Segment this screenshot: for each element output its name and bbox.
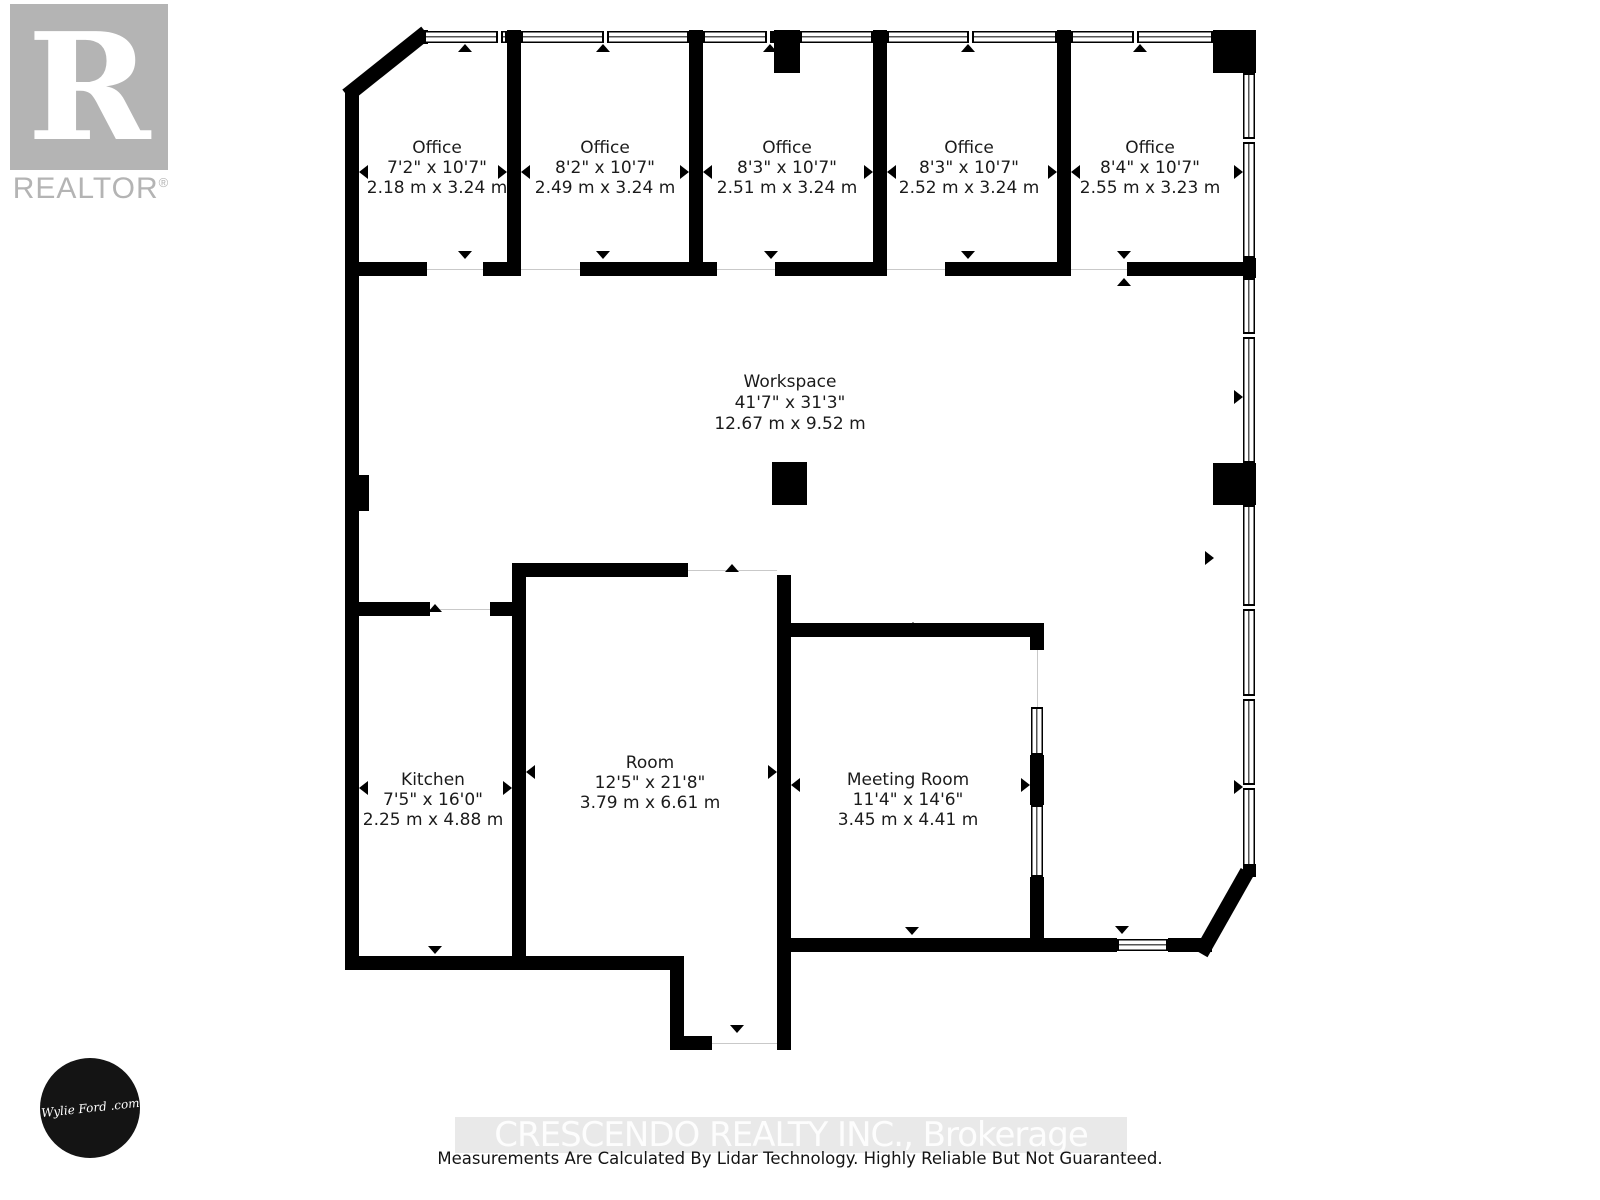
measure-arrow-icon — [887, 165, 896, 179]
measure-arrow-icon — [1048, 165, 1057, 179]
window-mullion — [1243, 332, 1255, 339]
wall-kitchen-top — [345, 602, 430, 616]
wall-room-meeting-divider — [777, 575, 791, 1050]
window-arrow-icon — [458, 44, 472, 52]
room-dimensions-imperial: 11'4" x 14'6" — [838, 790, 979, 810]
interior-window — [1031, 707, 1043, 755]
door-arrow-icon — [596, 251, 610, 259]
window-arrow-icon — [1115, 926, 1129, 934]
interior-window — [1031, 805, 1043, 877]
room-label-workspace: Workspace 41'7" x 31'3" 12.67 m x 9.52 m — [714, 372, 865, 435]
measure-arrow-icon — [864, 165, 873, 179]
room-dimensions-metric: 3.45 m x 4.41 m — [838, 810, 979, 830]
realtor-wordmark: REALTOR® — [2, 172, 180, 206]
wall-left — [345, 88, 359, 970]
room-dimensions-imperial: 8'3" x 10'7" — [899, 158, 1040, 178]
measure-arrow-icon — [703, 165, 712, 179]
room-name: Kitchen — [363, 770, 504, 790]
measure-arrow-icon — [1234, 780, 1243, 794]
wall-top-divider2 — [689, 30, 703, 44]
window-mullion — [765, 31, 772, 43]
room-name: Office — [1080, 138, 1221, 158]
room-label-office2: Office 8'2" x 10'7" 2.49 m x 3.24 m — [535, 138, 676, 198]
window — [1243, 505, 1255, 866]
room-name: Workspace — [714, 372, 865, 393]
column-top-right — [1213, 30, 1256, 73]
door-arrow-icon — [725, 564, 739, 572]
window-mullion — [1243, 604, 1255, 611]
wall-meeting-right — [1030, 755, 1044, 805]
wall-office-bottom — [345, 262, 427, 276]
door-opening — [887, 269, 945, 270]
realtor-r-mark: R — [28, 13, 151, 161]
window-mullion — [602, 31, 609, 43]
room-dimensions-imperial: 7'5" x 16'0" — [363, 790, 504, 810]
door-opening — [712, 1043, 777, 1044]
measure-arrow-icon — [1234, 165, 1243, 179]
door-opening — [717, 269, 775, 270]
room-dimensions-imperial: 12'5" x 21'8" — [580, 773, 721, 793]
wall-top-divider1 — [507, 30, 521, 44]
measure-arrow-icon — [1234, 390, 1243, 404]
window-arrow-icon — [763, 44, 777, 52]
wall-room-top — [512, 563, 688, 577]
wall-office-bottom — [945, 262, 1071, 276]
wall-vestibule-bottom — [670, 1036, 712, 1050]
room-dimensions-imperial: 7'2" x 10'7" — [367, 158, 508, 178]
room-dimensions-metric: 2.51 m x 3.24 m — [717, 178, 858, 198]
door-arrow-icon — [961, 251, 975, 259]
measure-arrow-icon — [503, 781, 512, 795]
wall-meeting-right — [1030, 877, 1044, 938]
door-arrow-icon — [458, 251, 472, 259]
wall-left-pilaster — [359, 475, 369, 511]
realtor-wordmark-text: REALTOR — [13, 172, 159, 205]
registered-trademark-icon: ® — [159, 175, 170, 190]
agent-signature: Wylie Ford .com — [40, 1096, 140, 1120]
door-arrow-icon — [905, 927, 919, 935]
agent-logo: Wylie Ford .com — [40, 1058, 140, 1158]
room-name: Meeting Room — [838, 770, 979, 790]
room-dimensions-metric: 2.25 m x 4.88 m — [363, 810, 504, 830]
brokerage-watermark: CRESCENDO REALTY INC., Brokerage — [455, 1117, 1127, 1153]
room-name: Office — [367, 138, 508, 158]
door-opening — [1071, 269, 1127, 270]
room-name: Room — [580, 753, 721, 773]
door-arrow-icon — [730, 1025, 744, 1033]
door-opening — [1037, 650, 1038, 707]
room-label-office1: Office 7'2" x 10'7" 2.18 m x 3.24 m — [367, 138, 508, 198]
room-label-office4: Office 8'3" x 10'7" 2.52 m x 3.24 m — [899, 138, 1040, 198]
wall-meeting-right-stub — [1030, 637, 1044, 650]
room-label-kitchen: Kitchen 7'5" x 16'0" 2.25 m x 4.88 m — [363, 770, 504, 830]
room-label-office5: Office 8'4" x 10'7" 2.55 m x 3.23 m — [1080, 138, 1221, 198]
door-arrow-icon — [1117, 278, 1131, 286]
door-arrow-icon — [428, 604, 442, 612]
measure-arrow-icon — [768, 765, 777, 779]
room-name: Office — [535, 138, 676, 158]
wall-diagonal-bottomright — [1194, 868, 1253, 957]
room-name: Office — [717, 138, 858, 158]
window — [1117, 939, 1168, 951]
door-opening — [427, 269, 483, 270]
window — [800, 31, 873, 43]
wall-office-bottom — [1127, 262, 1256, 276]
wall-office-divider1 — [507, 44, 521, 262]
measure-arrow-icon — [526, 765, 535, 779]
window-mullion — [496, 31, 503, 43]
wall-meeting-bottom — [791, 938, 1117, 952]
floor-plan: R REALTOR® — [0, 0, 1600, 1200]
window — [1243, 278, 1255, 463]
measure-arrow-icon — [791, 778, 800, 792]
realtor-logo: R — [10, 4, 168, 170]
wall-office-divider4 — [1057, 44, 1071, 262]
wall-room-left — [512, 563, 526, 970]
wall-office-bottom — [580, 262, 717, 276]
room-dimensions-metric: 2.49 m x 3.24 m — [535, 178, 676, 198]
room-label-meeting-room: Meeting Room 11'4" x 14'6" 3.45 m x 4.41… — [838, 770, 979, 830]
window — [703, 31, 774, 43]
measure-arrow-icon — [680, 165, 689, 179]
room-dimensions-metric: 2.55 m x 3.23 m — [1080, 178, 1221, 198]
window-mullion — [1243, 694, 1255, 701]
column-center — [772, 462, 807, 505]
wall-office-bottom — [775, 262, 887, 276]
room-dimensions-metric: 3.79 m x 6.61 m — [580, 793, 721, 813]
window-arrow-icon — [961, 44, 975, 52]
room-dimensions-imperial: 8'4" x 10'7" — [1080, 158, 1221, 178]
window-mullion — [967, 31, 974, 43]
wall-office-bottom — [483, 262, 521, 276]
measure-arrow-icon — [1071, 165, 1080, 179]
room-name: Office — [899, 138, 1040, 158]
measurement-disclaimer: Measurements Are Calculated By Lidar Tec… — [437, 1149, 1162, 1168]
window-mullion — [1243, 783, 1255, 790]
door-opening — [521, 269, 580, 270]
window-arrow-icon — [1133, 44, 1147, 52]
window — [1071, 31, 1213, 43]
door-arrow-icon — [764, 251, 778, 259]
column-right-middle — [1213, 463, 1256, 505]
wall-top-divider3 — [873, 30, 887, 44]
window — [1243, 73, 1255, 258]
window-mullion — [1243, 137, 1255, 144]
room-dimensions-imperial: 8'3" x 10'7" — [717, 158, 858, 178]
door-arrow-icon — [428, 946, 442, 954]
room-dimensions-metric: 12.67 m x 9.52 m — [714, 414, 865, 435]
room-label-room: Room 12'5" x 21'8" 3.79 m x 6.61 m — [580, 753, 721, 813]
door-arrow-icon — [906, 622, 920, 630]
door-arrow-icon — [1117, 251, 1131, 259]
window-arrow-icon — [596, 44, 610, 52]
measure-arrow-icon — [1021, 778, 1030, 792]
window — [424, 31, 507, 43]
room-dimensions-imperial: 8'2" x 10'7" — [535, 158, 676, 178]
measure-arrow-icon — [521, 165, 530, 179]
wall-top-divider4 — [1057, 30, 1071, 44]
room-dimensions-metric: 2.52 m x 3.24 m — [899, 178, 1040, 198]
wall-office-divider3 — [873, 44, 887, 262]
column-top-center — [774, 30, 800, 73]
window-mullion — [1132, 31, 1139, 43]
measure-arrow-icon — [1205, 551, 1214, 565]
room-dimensions-metric: 2.18 m x 3.24 m — [367, 178, 508, 198]
wall-office-divider2 — [689, 44, 703, 262]
wall-kitchen-bottom — [345, 956, 683, 970]
room-dimensions-imperial: 41'7" x 31'3" — [714, 393, 865, 414]
room-label-office3: Office 8'3" x 10'7" 2.51 m x 3.24 m — [717, 138, 858, 198]
